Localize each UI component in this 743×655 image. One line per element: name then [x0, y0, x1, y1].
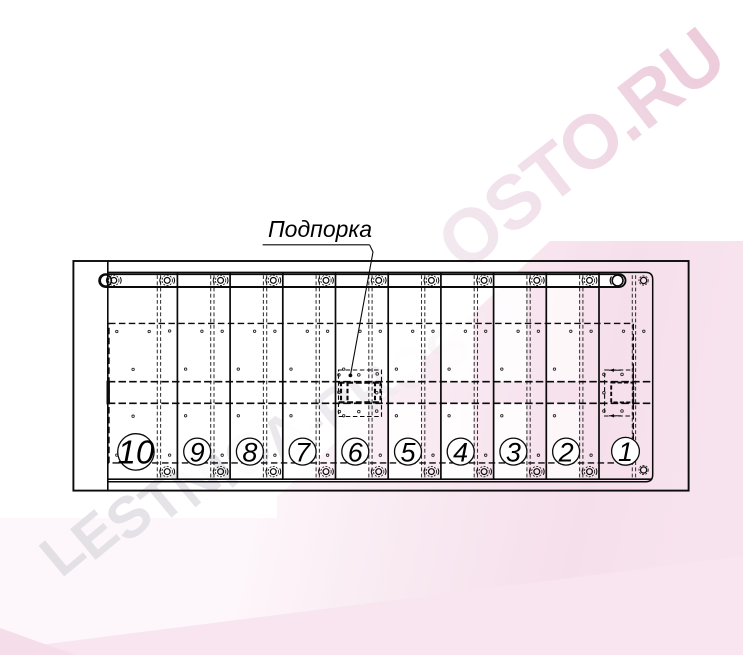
svg-text:7: 7 — [295, 437, 311, 467]
svg-text:9: 9 — [190, 437, 205, 467]
svg-text:4: 4 — [453, 437, 468, 467]
svg-text:6: 6 — [348, 437, 364, 467]
svg-text:1: 1 — [618, 437, 633, 467]
svg-text:2: 2 — [558, 437, 574, 467]
svg-text:8: 8 — [242, 437, 257, 467]
svg-text:10: 10 — [118, 434, 155, 471]
svg-text:Подпорка: Подпорка — [268, 216, 372, 242]
svg-text:3: 3 — [506, 437, 521, 467]
svg-text:5: 5 — [400, 437, 416, 467]
